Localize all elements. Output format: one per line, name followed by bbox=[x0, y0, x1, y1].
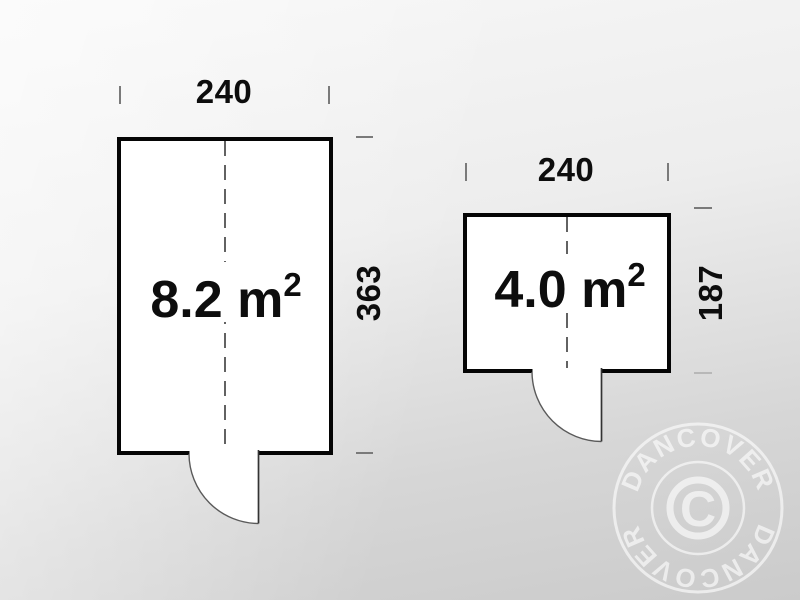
floorplan-diagram: 240 363 8.2 m2 240 187 bbox=[0, 0, 800, 600]
small-area-label: 4.0 m2 bbox=[494, 256, 645, 319]
floorplan-small: 240 187 4.0 m2 bbox=[465, 151, 729, 442]
copyright-letter: C bbox=[680, 481, 716, 537]
floorplan-large: 240 363 8.2 m2 bbox=[119, 73, 387, 524]
dancover-watermark: DANCOVER DANCOVER C bbox=[614, 421, 782, 594]
small-door-swing-area bbox=[532, 372, 602, 442]
diagram-canvas: 240 363 8.2 m2 240 187 bbox=[0, 0, 800, 600]
large-area-label: 8.2 m2 bbox=[150, 266, 301, 329]
small-area-exponent: 2 bbox=[627, 256, 645, 293]
large-area-exponent: 2 bbox=[283, 266, 301, 303]
large-area-value: 8.2 m bbox=[150, 271, 283, 329]
small-depth-label: 187 bbox=[692, 265, 729, 322]
large-door-swing-area bbox=[189, 454, 259, 524]
small-width-label: 240 bbox=[538, 151, 595, 188]
large-depth-label: 363 bbox=[350, 265, 387, 322]
large-width-label: 240 bbox=[196, 73, 253, 110]
small-area-value: 4.0 m bbox=[494, 261, 627, 319]
